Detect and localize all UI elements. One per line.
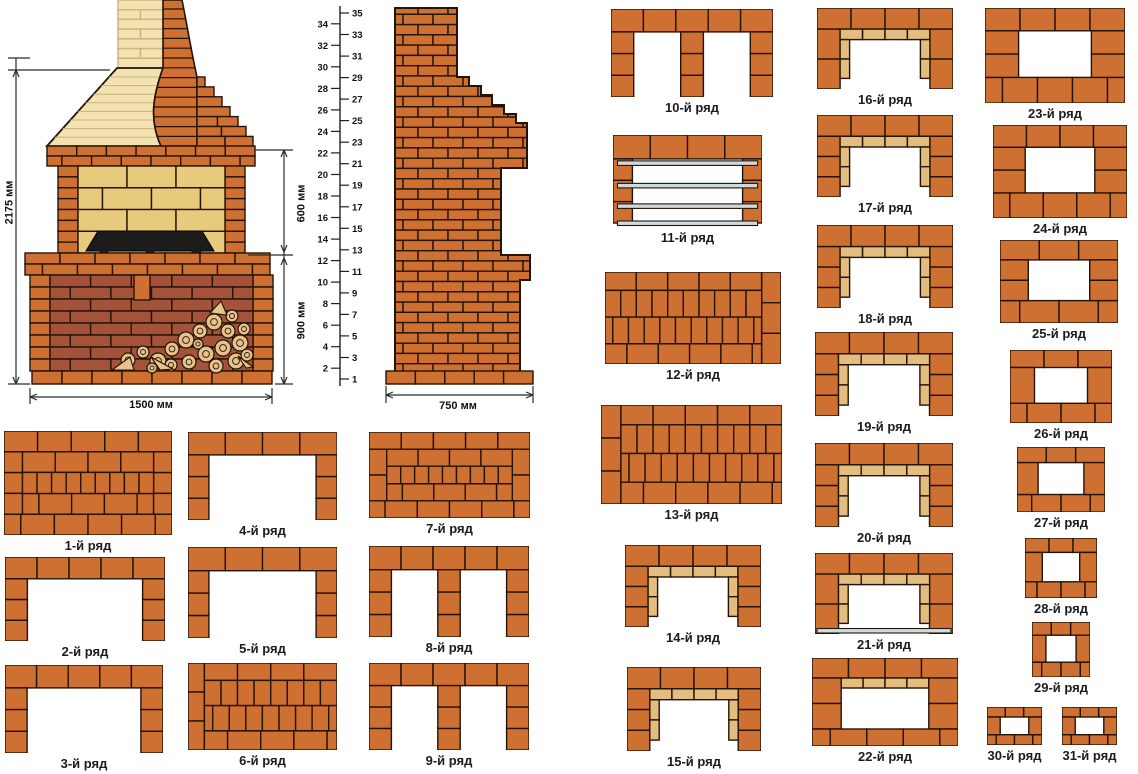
row-label: 2-й ряд (5, 645, 165, 659)
row-diagram-7 (369, 432, 530, 518)
row-label: 26-й ряд (1010, 427, 1112, 441)
dim-total-height: 2175 мм (4, 167, 17, 239)
svg-text:34: 34 (318, 19, 329, 30)
svg-text:20: 20 (318, 170, 328, 181)
row-diagram-15 (627, 667, 761, 751)
svg-text:15: 15 (352, 224, 363, 235)
row-diagram-2 (5, 557, 165, 641)
row-diagram-26 (1010, 350, 1112, 423)
svg-text:10: 10 (318, 278, 328, 289)
svg-text:16: 16 (318, 213, 328, 224)
row-diagram-30 (987, 707, 1042, 745)
row-label: 17-й ряд (817, 201, 953, 215)
row-label: 11-й ряд (613, 231, 762, 245)
svg-text:19: 19 (352, 181, 363, 192)
row-label: 3-й ряд (5, 757, 163, 771)
row-diagram-24 (993, 125, 1127, 218)
svg-text:4: 4 (323, 342, 329, 353)
svg-text:35: 35 (352, 9, 363, 20)
row-label: 13-й ряд (601, 508, 782, 522)
side-elevation-with-course-ruler: 1234567891011121314151617181920212223242… (318, 0, 548, 415)
svg-text:9: 9 (352, 288, 357, 299)
svg-text:3: 3 (352, 353, 357, 364)
svg-text:13: 13 (352, 245, 363, 256)
row-diagram-18 (817, 225, 953, 308)
svg-text:30: 30 (318, 62, 328, 73)
svg-text:26: 26 (318, 105, 328, 116)
row-diagram-10 (611, 9, 773, 97)
row-label: 21-й ряд (815, 638, 953, 652)
row-label: 31-й ряд (1062, 749, 1117, 763)
row-diagram-28 (1025, 538, 1097, 598)
svg-text:6: 6 (323, 321, 328, 332)
svg-text:25: 25 (352, 116, 363, 127)
row-diagram-21 (815, 553, 953, 634)
svg-text:1: 1 (352, 375, 358, 386)
row-diagram-5 (188, 547, 337, 638)
row-label: 24-й ряд (993, 222, 1127, 236)
svg-text:29: 29 (352, 73, 363, 84)
dim-front-width: 1500 мм (101, 399, 201, 412)
svg-text:31: 31 (352, 52, 363, 63)
row-diagram-14 (625, 545, 761, 627)
row-label: 10-й ряд (611, 101, 773, 115)
svg-text:32: 32 (318, 41, 328, 52)
row-label: 30-й ряд (987, 749, 1042, 763)
row-label: 29-й ряд (1032, 681, 1090, 695)
row-label: 18-й ряд (817, 312, 953, 326)
row-diagram-9 (369, 663, 529, 750)
svg-text:24: 24 (318, 127, 329, 138)
svg-text:28: 28 (318, 84, 328, 95)
row-diagram-8 (369, 546, 529, 637)
svg-text:14: 14 (318, 235, 329, 246)
svg-text:18: 18 (318, 192, 328, 203)
row-diagram-19 (815, 332, 953, 416)
row-diagram-22 (812, 658, 958, 746)
svg-text:5: 5 (352, 331, 358, 342)
row-label: 23-й ряд (985, 107, 1125, 121)
dim-base-height: 900 мм (296, 293, 309, 349)
row-diagram-23 (985, 8, 1125, 103)
row-diagram-12 (605, 272, 781, 364)
front-elevation-drawing (0, 0, 320, 415)
row-label: 4-й ряд (188, 524, 337, 538)
svg-text:7: 7 (352, 310, 357, 321)
row-label: 1-й ряд (4, 539, 172, 553)
row-diagram-16 (817, 8, 953, 89)
svg-text:12: 12 (318, 256, 328, 267)
row-diagram-4 (188, 432, 337, 520)
row-label: 22-й ряд (812, 750, 958, 764)
row-label: 7-й ряд (369, 522, 530, 536)
svg-text:21: 21 (352, 159, 363, 170)
row-label: 25-й ряд (1000, 327, 1118, 341)
svg-text:17: 17 (352, 202, 363, 213)
svg-text:33: 33 (352, 30, 363, 41)
row-diagram-29 (1032, 622, 1090, 677)
row-diagram-20 (815, 443, 953, 527)
row-label: 19-й ряд (815, 420, 953, 434)
row-diagram-11 (613, 135, 762, 227)
row-label: 6-й ряд (188, 754, 337, 768)
svg-text:11: 11 (352, 267, 363, 278)
svg-text:27: 27 (352, 95, 363, 106)
row-diagram-31 (1062, 707, 1117, 745)
row-label: 27-й ряд (1017, 516, 1105, 530)
row-diagram-27 (1017, 447, 1105, 512)
row-label: 16-й ряд (817, 93, 953, 107)
row-diagram-25 (1000, 240, 1118, 323)
row-diagram-17 (817, 115, 953, 197)
svg-text:23: 23 (352, 138, 363, 149)
row-diagram-1 (4, 431, 172, 535)
row-label: 9-й ряд (369, 754, 529, 768)
row-label: 20-й ряд (815, 531, 953, 545)
row-label: 28-й ряд (1025, 602, 1097, 616)
dim-side-depth: 750 мм (408, 400, 508, 413)
bbq-fireplace-masonry-scheme: 1234567891011121314151617181920212223242… (0, 0, 1138, 774)
svg-text:22: 22 (318, 148, 328, 159)
row-diagram-3 (5, 665, 163, 753)
row-diagram-13 (601, 405, 782, 504)
svg-text:2: 2 (323, 364, 328, 375)
row-label: 8-й ряд (369, 641, 529, 655)
row-label: 15-й ряд (627, 755, 761, 769)
row-diagram-6 (188, 663, 337, 750)
row-label: 5-й ряд (188, 642, 337, 656)
row-label: 12-й ряд (605, 368, 781, 382)
dim-firebox-height: 600 мм (296, 176, 309, 232)
svg-text:8: 8 (323, 299, 328, 310)
row-label: 14-й ряд (625, 631, 761, 645)
